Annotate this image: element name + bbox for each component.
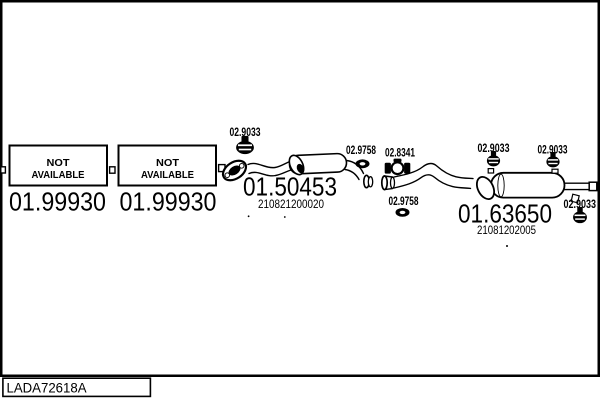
clamp-block-right (404, 163, 410, 174)
catalog-code-label: LADA72618A (7, 380, 87, 395)
center-muffler-oem-number: 210821200020 (258, 197, 324, 211)
not-available-line2: AVAILABLE (141, 169, 194, 181)
not-available-box-2[interactable]: NOT AVAILABLE (119, 146, 217, 186)
speck-dot (284, 216, 286, 218)
hanger-part-label-3[interactable]: 02.9033 (538, 144, 568, 156)
speck-dot (506, 245, 508, 247)
not-available-box-1[interactable]: NOT AVAILABLE (10, 146, 108, 186)
clamp-part-label[interactable]: 02.8341 (385, 148, 415, 160)
flange-connector-square-2 (110, 167, 115, 173)
gasket-part-label-1[interactable]: 02.9758 (346, 145, 376, 157)
coupling-ring (391, 177, 395, 188)
clamp-ring (392, 162, 404, 174)
gasket-ring-icon-2 (396, 208, 410, 217)
flange-connector-square-1 (1, 167, 6, 173)
not-available-line2: AVAILABLE (32, 169, 85, 181)
hanger-part-label-1[interactable]: 02.9033 (230, 127, 261, 139)
not-available-line1: NOT (47, 157, 71, 169)
not-available-line1: NOT (156, 157, 180, 169)
coupling-stub-bottom (385, 189, 393, 190)
gasket-part-label-2[interactable]: 02.9758 (389, 196, 419, 208)
coupling-flare-inner (368, 177, 372, 187)
rear-muffler-body (491, 173, 565, 198)
exhaust-diagram-canvas: NOT AVAILABLE 01.99930 NOT AVAILABLE 01.… (0, 0, 600, 400)
coupling-stub-top (385, 176, 393, 177)
part-number-front-1[interactable]: 01.99930 (9, 187, 106, 217)
clamp-block-left (385, 163, 391, 174)
hanger-part-label-2[interactable]: 02.9033 (478, 143, 510, 155)
rear-muffler-bracket-2 (552, 169, 558, 173)
coupling-flange (382, 176, 387, 190)
exhaust-diagram-page: NOT AVAILABLE 01.99930 NOT AVAILABLE 01.… (0, 0, 600, 400)
tailpipe-tip (589, 182, 597, 190)
speck-dot (248, 215, 250, 217)
rear-muffler-oem-number: 21081202005 (477, 223, 536, 237)
hanger-part-label-4[interactable]: 02.9033 (564, 199, 597, 211)
rear-muffler-bracket-1 (488, 169, 493, 173)
gasket-ring-icon-1 (356, 159, 370, 168)
part-number-front-2[interactable]: 01.99930 (120, 187, 217, 217)
